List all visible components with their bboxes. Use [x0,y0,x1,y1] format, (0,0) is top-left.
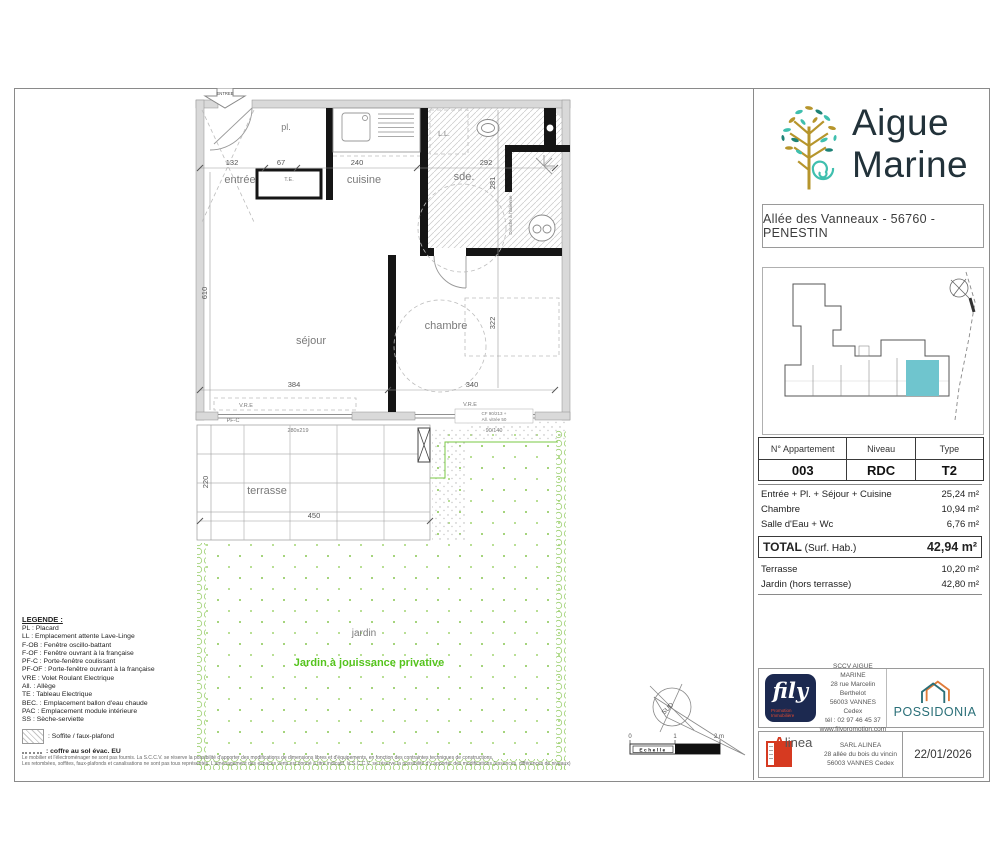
surface-list: Entrée + Pl. + Séjour + Cuisine 25,24 m²… [758,484,982,595]
dim-sejour-w: 384 [288,380,301,389]
legend-item: VRE : Volet Roulant Electrique [22,675,262,683]
apartment-type: T2 [915,459,983,480]
cf-line2: All. vitrée 50 [482,417,507,422]
legend-soffite: : Soffite / faux-plafond [48,733,114,740]
dim-cuisine: 240 [351,158,364,167]
possidonia-wordmark: POSSIDONIA [894,705,977,719]
legend-item: F-OF : Fenêtre ouvrant à la française [22,650,262,658]
site-compass-icon [950,279,969,298]
room-cuisine: cuisine [347,174,381,186]
site-plan-box [762,267,984,435]
project-address: Allée des Vanneaux - 56760 - PENESTIN [762,204,984,248]
alinea-rest: linea [785,735,812,750]
room-sejour: séjour [296,335,326,347]
surface-value: 6,76 m² [947,519,979,530]
apartment-table-header: N° Appartement Niveau Type [759,438,983,459]
room-sde: sde. [454,171,475,183]
surface-row: Entrée + Pl. + Séjour + Cuisine 25,24 m² [758,485,982,500]
apartment-level: RDC [846,459,914,480]
possidonia-house-icon [915,677,955,703]
apartment-table-values: 003 RDC T2 [759,459,983,480]
legend-item: PF-C : Porte-fenêtre coulissant [22,658,262,666]
surface-row: Terrasse 10,20 m² [758,560,982,575]
surface-label: Entrée + Pl. + Séjour + Cuisine [761,489,892,500]
architect-company: SARL ALINEA [819,741,902,750]
douche-label: Douche à l'italienne [508,195,513,235]
surface-value: 10,94 m² [942,504,980,515]
electrical-panel-box [257,170,321,198]
total-rest: (Surf. Hab.) [802,543,856,554]
legend: LEGENDE : PL : Placard LL : Emplacement … [22,615,262,755]
dim-sde-w: 292 [480,158,493,167]
promoter-company: SCCV AIGUE MARINE [820,662,886,680]
room-entree: entrée [224,174,255,186]
brand-name-line1: Aigue [852,102,968,144]
brand-name: Aigue Marine [852,102,968,186]
plan-date: 22/01/2026 [902,732,983,777]
fily-wordmark: fily [765,678,816,703]
legend-item: TE : Tableau Electrique [22,691,262,699]
dim-terrasse-h: 220 [201,476,210,489]
surface-total: TOTAL (Surf. Hab.) 42,94 m² [758,536,982,558]
room-chambre: chambre [425,320,468,332]
fily-caption-line2: Immobilière [771,713,794,718]
room-placard: pl. [281,122,291,132]
unit-highlight [906,360,939,396]
scale-bar: 0 1 2 m Echelle [628,734,724,754]
legend-item: All. : Allège [22,683,262,691]
cf-line1: CF 90/213 + [482,411,507,416]
dim-chambre-w: 340 [466,380,479,389]
promoter-contact: SCCV AIGUE MARINE 28 rue Marcelin Berthe… [820,669,886,727]
disclaimer-line2: Les retombées, soffites, faux-plafonds e… [22,761,742,767]
surface-label: Jardin (hors terrasse) [761,579,851,590]
room-jardin: jardin [351,628,376,639]
win-size-label: 90/140 [486,428,503,434]
dim-sde-h: 281 [488,177,497,190]
surface-total-value: 42,94 m² [927,540,977,554]
architect-address1: 28 allée du bois du vincin [819,750,902,759]
alinea-a: A [774,734,785,751]
architect-contact: SARL ALINEA 28 allée du bois du vincin 5… [819,732,902,777]
project-address-text: Allée des Vanneaux - 56760 - PENESTIN [763,212,983,240]
dim-placard: 67 [277,158,285,167]
fily-caption: Promotion Immobilière [771,708,794,718]
legend-item: PL : Placard [22,625,262,633]
alinea-logo: Alinea [759,732,819,777]
pfc-size-label: 280x219 [287,428,308,434]
alinea-wordmark: Alinea [774,734,812,751]
room-terrasse: terrasse [247,485,287,497]
soffite-swatch-icon [22,729,44,744]
possidonia-panel: POSSIDONIA [886,669,983,727]
surface-label: Salle d'Eau + Wc [761,519,833,530]
surface-row: Chambre 10,94 m² [758,500,982,515]
surface-value: 42,80 m² [942,579,980,590]
jardin-caption: Jardin à jouissance privative [294,657,444,669]
scale-2m: 2 m [714,734,724,740]
vre-left-label: V.R.E [239,403,253,409]
apartment-table: N° Appartement Niveau Type 003 RDC T2 [758,437,984,481]
plan-sheet: ENTREE 132 67 [0,0,1000,857]
site-plan [763,268,981,432]
dim-sejour-h: 610 [200,287,209,300]
dim-chambre-h: 322 [488,317,497,330]
terrace-area [197,425,430,540]
legend-item: BEC. : Emplacement ballon d'eau chaude [22,700,262,708]
scale-1: 1 [673,734,677,740]
wave-spiral-icon [813,162,833,179]
entrance-arrow-label: ENTREE [217,91,234,96]
surface-label: Chambre [761,504,800,515]
total-strong: TOTAL [763,540,802,554]
legend-item: PAC : Emplacement module intérieure [22,708,262,716]
surface-value: 10,20 m² [942,564,980,575]
brand-logo-tree [768,100,850,192]
surface-value: 25,24 m² [942,489,980,500]
header-level: Niveau [846,438,914,459]
pfc-label: PF-C [227,418,240,424]
coffre-swatch-icon [22,748,42,754]
brand-name-line2: Marine [852,144,968,186]
dim-entree: 132 [226,158,239,167]
promoter-address2: 56003 VANNES Cedex [820,698,886,716]
disclaimer: Le mobilier et l'électroménager ne sont … [22,755,742,767]
surface-row: Jardin (hors terrasse) 42,80 m² [758,575,982,590]
promoter-address1: 28 rue Marcelin Berthelot [820,680,886,698]
legend-title: LEGENDE : [22,615,262,624]
header-type: Type [915,438,983,459]
architect-address2: 56003 VANNES Cedex [819,759,902,768]
kitchen-fixtures [333,108,420,152]
promoter-box: fily Promotion Immobilière SCCV AIGUE MA… [758,668,984,728]
legend-item: PF-OF : Porte-fenêtre ouvrant à la franç… [22,666,262,674]
legend-item: SS : Sèche-serviette [22,716,262,724]
surface-row: Salle d'Eau + Wc 6,76 m² [758,515,982,530]
scale-0: 0 [628,734,632,740]
architect-box: Alinea SARL ALINEA 28 allée du bois du v… [758,731,984,778]
header-apartment-number: N° Appartement [759,438,846,459]
legend-coffre: : coffre au sol évac. EU [46,748,121,755]
scale-label: Echelle [639,748,666,754]
ll-label: L.L. [438,131,450,138]
legend-item: LL : Emplacement attente Lave-Linge [22,633,262,641]
legend-item: F-OB : Fenêtre oscillo-battant [22,642,262,650]
surface-total-label: TOTAL (Surf. Hab.) [763,540,856,554]
apartment-number: 003 [759,459,846,480]
surface-label: Terrasse [761,564,797,575]
te-label: T.E. [284,177,294,183]
dim-terrasse-w: 450 [308,511,321,520]
terrace-column [418,428,430,462]
fily-logo: fily Promotion Immobilière [765,674,816,722]
vre-right-label: V.R.E [463,402,477,408]
promoter-phone: tél : 02 97 46 45 37 [820,716,886,725]
